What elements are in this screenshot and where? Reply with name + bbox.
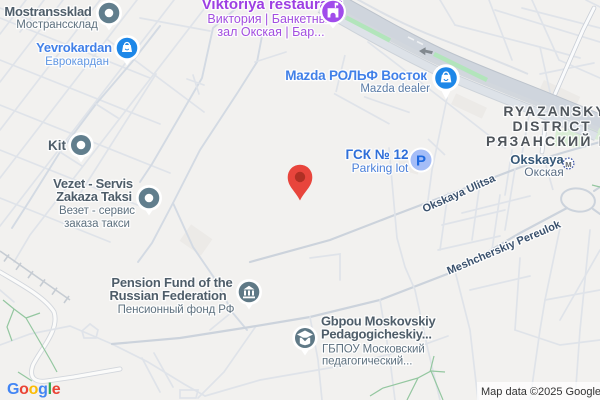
- svg-text:заказа такси: заказа такси: [64, 218, 130, 230]
- svg-text:Еврокардан: Еврокардан: [45, 56, 109, 68]
- svg-text:Russian Federation: Russian Federation: [109, 288, 226, 303]
- svg-text:Пенсионный фонд РФ: Пенсионный фонд РФ: [118, 304, 235, 316]
- svg-text:Google: Google: [7, 381, 61, 398]
- svg-text:м: м: [565, 159, 572, 169]
- svg-text:Pedagogicheskiy...: Pedagogicheskiy...: [321, 327, 432, 342]
- svg-text:зал Окская | Бар...: зал Окская | Бар...: [217, 25, 324, 39]
- svg-text:РЯЗАНСКИЙ РАЙ: РЯЗАНСКИЙ РАЙ: [486, 132, 600, 149]
- svg-text:педагогический...: педагогический...: [322, 356, 412, 368]
- svg-text:Kit: Kit: [48, 138, 67, 153]
- svg-text:P: P: [416, 153, 426, 170]
- svg-text:Mostranssklad: Mostranssklad: [4, 4, 91, 19]
- svg-text:Mazda РОЛЬФ Восток: Mazda РОЛЬФ Восток: [285, 68, 427, 83]
- svg-text:DISTRICT: DISTRICT: [513, 118, 592, 134]
- svg-text:Виктория | Банкетный: Виктория | Банкетный: [207, 12, 334, 26]
- svg-text:Parking lot: Parking lot: [352, 161, 409, 175]
- svg-text:Map data ©2025 Google: Map data ©2025 Google: [481, 386, 600, 398]
- svg-text:Zakaza Taksi: Zakaza Taksi: [56, 189, 132, 204]
- svg-text:Везет - сервис: Везет - сервис: [59, 205, 135, 217]
- svg-text:RYAZANSKY: RYAZANSKY: [503, 103, 600, 119]
- svg-text:ГБПОУ Московский: ГБПОУ Московский: [322, 344, 425, 356]
- svg-text:Мостранссклад: Мостранссклад: [16, 19, 98, 31]
- svg-text:Mazda dealer: Mazda dealer: [360, 83, 430, 95]
- svg-text:Yevrokardan: Yevrokardan: [36, 40, 112, 55]
- svg-text:ГСК № 12: ГСК № 12: [345, 147, 408, 162]
- svg-text:Окская: Окская: [524, 165, 563, 179]
